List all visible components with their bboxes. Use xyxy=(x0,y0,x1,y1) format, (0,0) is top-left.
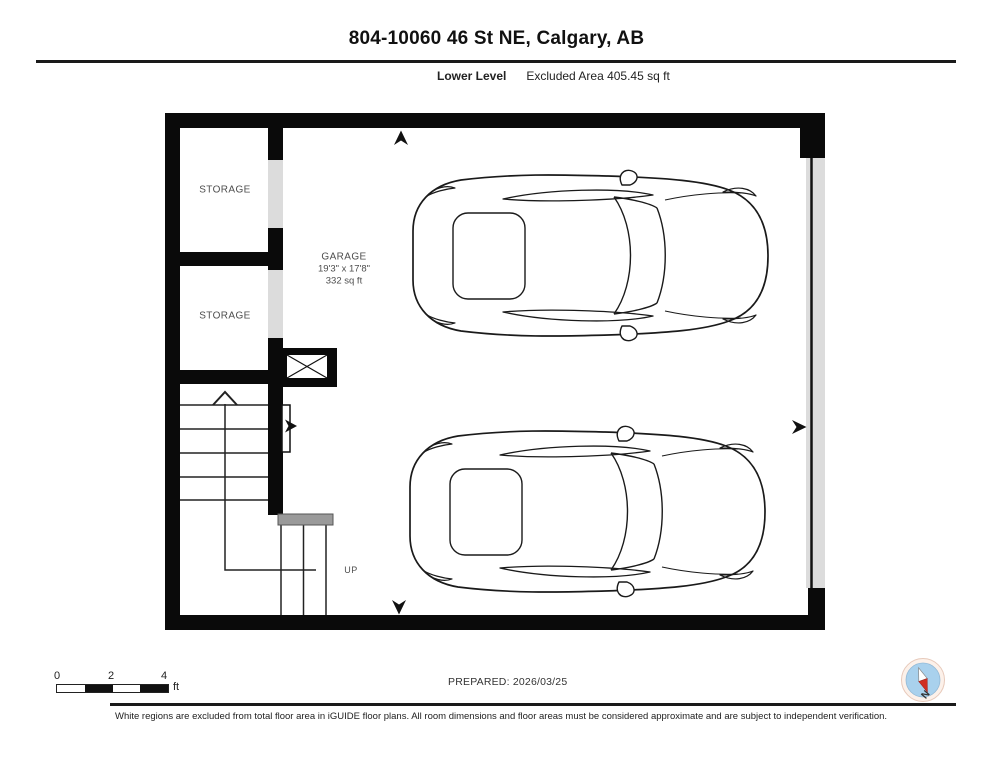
garage-name: GARAGE xyxy=(318,252,370,263)
scale-segment xyxy=(57,685,85,692)
room-label-storage-1: STORAGE xyxy=(199,185,251,196)
scale-tick-2: 2 xyxy=(108,670,114,682)
scale-segment xyxy=(85,685,113,692)
stair-landing xyxy=(278,514,333,525)
scale-bar xyxy=(56,684,169,693)
staircase xyxy=(180,392,326,615)
room-label-garage: GARAGE 19'3" x 17'8" 332 sq ft xyxy=(318,252,370,287)
scale-tick-0: 0 xyxy=(54,670,60,682)
car-bottom xyxy=(410,426,765,596)
stairs-up-label: UP xyxy=(344,565,358,575)
disclaimer-text: White regions are excluded from total fl… xyxy=(115,711,887,722)
shaft-symbol xyxy=(280,348,337,387)
garage-dimensions: 19'3" x 17'8" xyxy=(318,264,370,275)
scale-unit-label: ft xyxy=(173,681,179,693)
door-symbol xyxy=(282,405,297,452)
garage-area: 332 sq ft xyxy=(318,276,370,287)
garage-door xyxy=(806,158,825,588)
footer-divider xyxy=(110,703,956,706)
scale-segment xyxy=(113,685,141,692)
room-label-storage-2: STORAGE xyxy=(199,311,251,322)
car-top xyxy=(413,170,768,340)
entry-arrow-down xyxy=(392,600,406,615)
entry-arrow-right xyxy=(792,420,807,434)
floorplan-drawing xyxy=(0,0,993,768)
scale-segment xyxy=(140,685,168,692)
scale-tick-4: 4 xyxy=(161,670,167,682)
entry-arrow-up xyxy=(394,131,408,146)
prepared-date: PREPARED: 2026/03/25 xyxy=(448,676,567,688)
